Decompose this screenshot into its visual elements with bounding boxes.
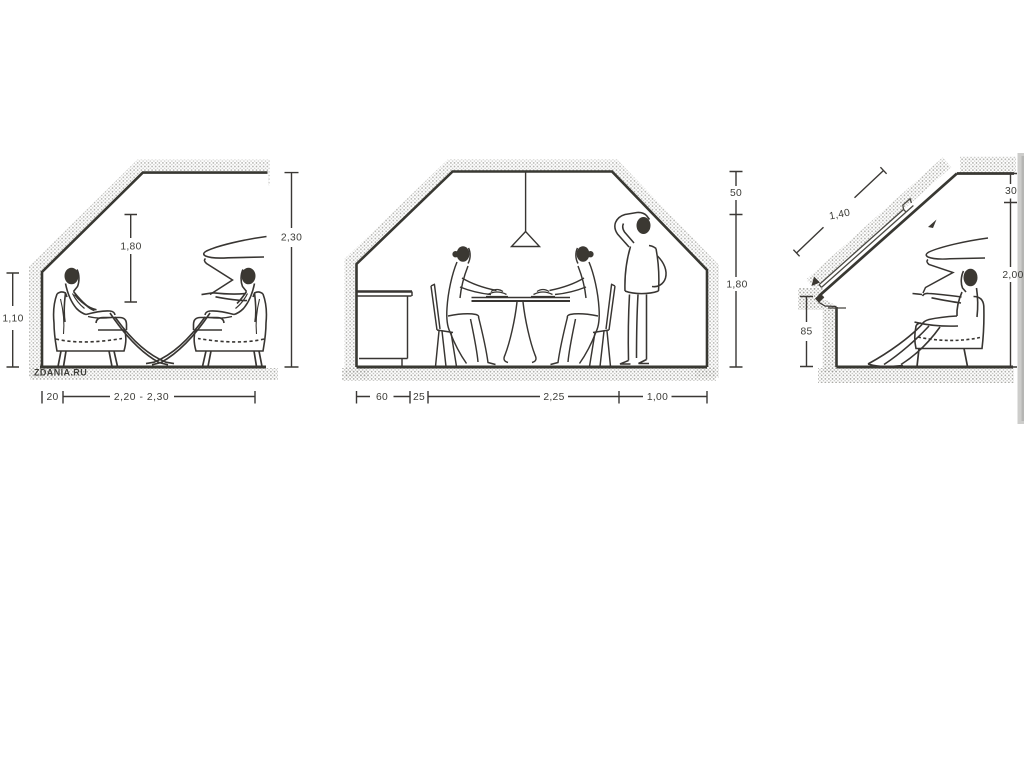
svg-text:1,00: 1,00	[647, 392, 668, 403]
svg-text:85: 85	[800, 327, 812, 338]
svg-text:1,80: 1,80	[120, 242, 141, 253]
svg-text:60: 60	[376, 392, 388, 403]
svg-text:ZDANIA.RU: ZDANIA.RU	[34, 368, 87, 378]
svg-text:1,80: 1,80	[726, 280, 747, 291]
svg-text:30: 30	[1005, 186, 1017, 197]
svg-text:2,00: 2,00	[1002, 270, 1023, 281]
svg-text:20: 20	[46, 392, 58, 403]
svg-text:1,10: 1,10	[2, 314, 23, 325]
svg-text:2,30: 2,30	[281, 233, 302, 244]
svg-text:50: 50	[730, 188, 742, 199]
svg-text:2,25: 2,25	[543, 392, 564, 403]
svg-text:2,20 - 2,30: 2,20 - 2,30	[114, 392, 169, 403]
svg-text:25: 25	[413, 392, 425, 403]
